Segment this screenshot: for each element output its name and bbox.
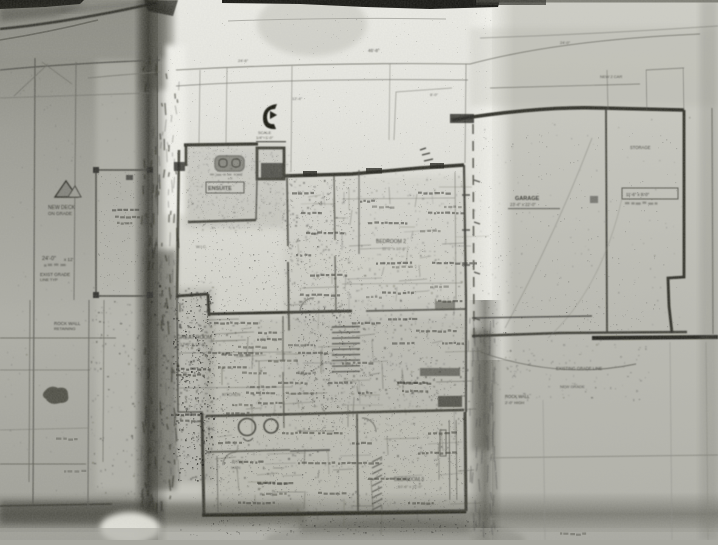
svg-text:46'-8": 46'-8" [368, 48, 380, 53]
svg-text:23'-4" x 22'-0": 23'-4" x 22'-0" [510, 202, 536, 207]
svg-text:RETAINING: RETAINING [54, 326, 75, 331]
svg-text:ROCK WALL: ROCK WALL [505, 394, 530, 399]
svg-text:STORAGE: STORAGE [630, 145, 651, 150]
svg-text:EXISTING GRADE LINE: EXISTING GRADE LINE [556, 366, 602, 371]
svg-text:2'-0" HIGH: 2'-0" HIGH [505, 400, 524, 405]
svg-text:NEW GRADE: NEW GRADE [560, 384, 585, 389]
svg-text:24'-0": 24'-0" [560, 40, 571, 45]
svg-text:1/4"=1'-0": 1/4"=1'-0" [256, 135, 274, 140]
svg-text:24'-6": 24'-6" [238, 58, 249, 63]
svg-text:x 12': x 12' [64, 257, 74, 262]
svg-text:ON GRADE: ON GRADE [48, 211, 72, 216]
svg-text:NEW 2 CAR: NEW 2 CAR [600, 74, 622, 79]
svg-text:12'-4": 12'-4" [292, 96, 303, 101]
svg-text:LINE TYP: LINE TYP [40, 277, 58, 282]
svg-text:8'-0": 8'-0" [430, 92, 439, 97]
svg-text:24'-0": 24'-0" [42, 256, 56, 262]
